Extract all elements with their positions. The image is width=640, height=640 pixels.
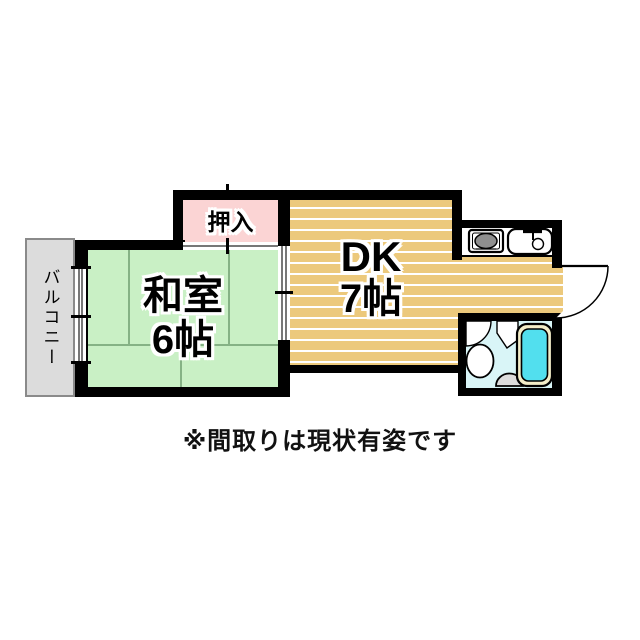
washitsu-size: 6帖 xyxy=(152,319,214,362)
kitchen-counter xyxy=(462,228,552,257)
washitsu-label-block: 和室 6帖 xyxy=(88,250,278,387)
wall xyxy=(552,313,562,396)
sliding-door-line xyxy=(183,245,278,247)
wall xyxy=(278,365,466,373)
wall-tick xyxy=(226,184,229,192)
dk-label-block: DK 7帖 xyxy=(290,228,452,328)
wall xyxy=(75,240,185,250)
oshiire-label-block: 押入 xyxy=(183,198,278,242)
wall xyxy=(552,220,562,268)
balcony-label: バルコニー xyxy=(38,268,63,368)
wall xyxy=(458,313,562,321)
floorplan-note: ※間取りは現状有姿です xyxy=(80,421,560,451)
floorplan-canvas: バルコニー xyxy=(0,0,640,640)
wall xyxy=(458,388,562,396)
wall xyxy=(458,313,466,396)
bathroom-floor xyxy=(466,321,552,388)
wall xyxy=(75,387,290,397)
wall xyxy=(452,220,562,228)
balcony-area: バルコニー xyxy=(25,238,75,397)
dk-name: DK xyxy=(341,236,402,279)
washitsu-name: 和室 xyxy=(143,275,223,318)
wall xyxy=(278,190,462,200)
dk-size: 7帖 xyxy=(340,279,402,320)
oshiire-name: 押入 xyxy=(208,203,254,237)
